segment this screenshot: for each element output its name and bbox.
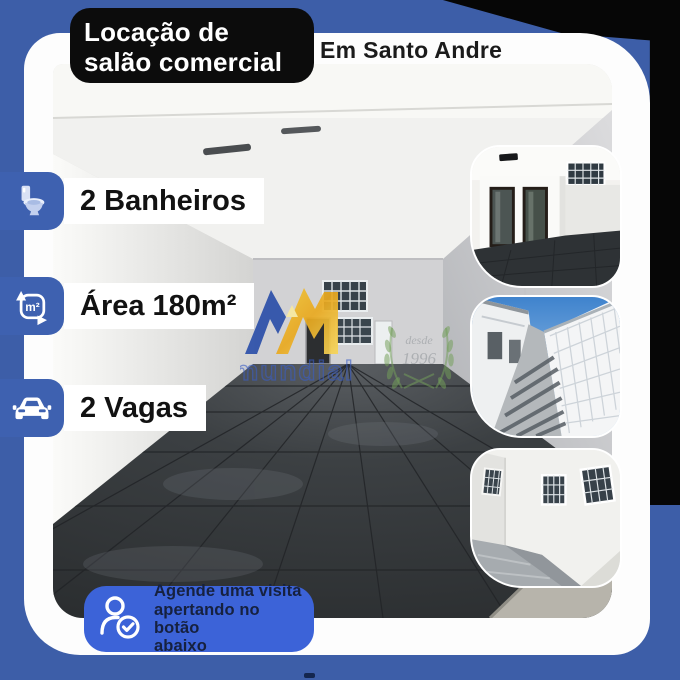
title-line1: Locação de — [84, 17, 314, 47]
real-estate-flyer: mundial desde 1996 — [0, 0, 680, 680]
toilet-icon — [0, 172, 64, 230]
thumb2-scene — [472, 297, 620, 436]
feature-parking-label: 2 Vagas — [64, 385, 206, 431]
cta-line3: abaixo — [154, 637, 306, 655]
cutoff-text-mark — [304, 673, 315, 678]
title-box: Locação de salão comercial — [70, 8, 314, 83]
person-check-icon — [94, 591, 146, 648]
area-icon-text: m² — [25, 300, 39, 314]
thumbnail-photo-corridor — [470, 295, 622, 438]
cta-text: Agende uma visita apertando no botão aba… — [154, 582, 306, 656]
thumb1-scene — [472, 147, 620, 286]
feature-area: m² Área 180m² — [0, 277, 254, 335]
feature-bathrooms-label: 2 Banheiros — [64, 178, 264, 224]
feature-area-label: Área 180m² — [64, 283, 254, 329]
car-icon — [0, 379, 64, 437]
schedule-visit-button[interactable]: Agende uma visita apertando no botão aba… — [84, 586, 314, 652]
title-line2: salão comercial — [84, 47, 314, 77]
feature-bathrooms: 2 Banheiros — [0, 172, 264, 230]
feature-parking: 2 Vagas — [0, 379, 206, 437]
thumb3-scene — [472, 450, 620, 586]
thumbnail-photo-interior-doors — [470, 145, 622, 288]
thumbnail-photo-courtyard — [470, 448, 622, 588]
cta-line1: Agende uma visita — [154, 582, 306, 600]
location-text: Em Santo Andre — [320, 37, 502, 64]
cta-line2: apertando no botão — [154, 601, 306, 638]
area-m2-icon: m² — [0, 277, 64, 335]
